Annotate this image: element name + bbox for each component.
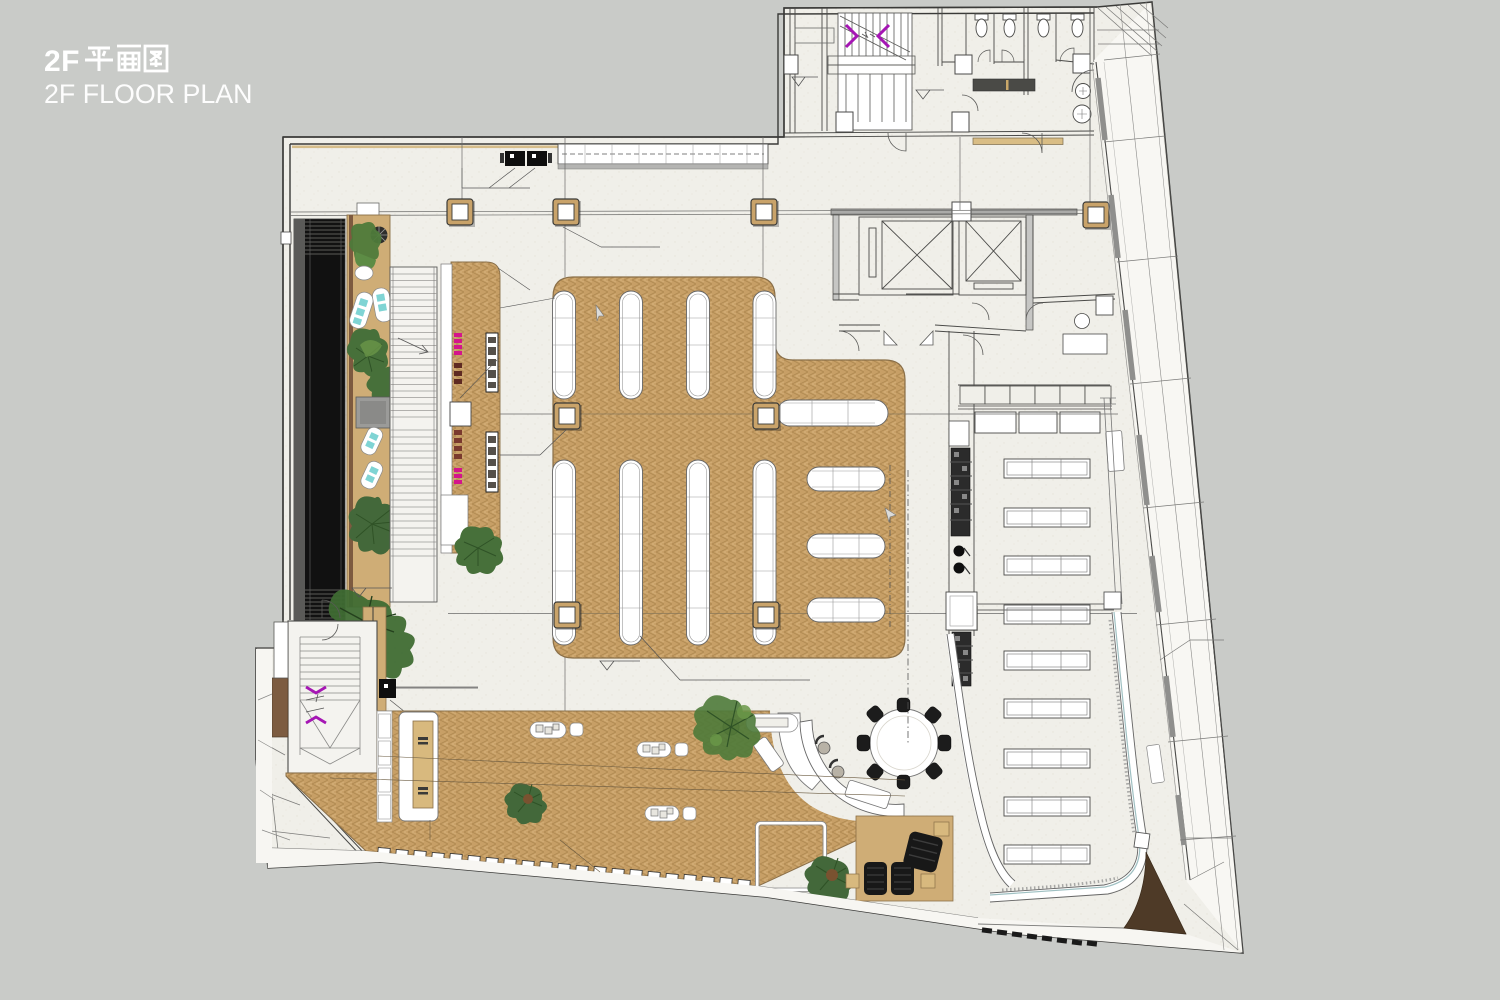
svg-text:2F: 2F	[44, 45, 80, 78]
svg-text:2F FLOOR PLAN: 2F FLOOR PLAN	[44, 79, 252, 109]
